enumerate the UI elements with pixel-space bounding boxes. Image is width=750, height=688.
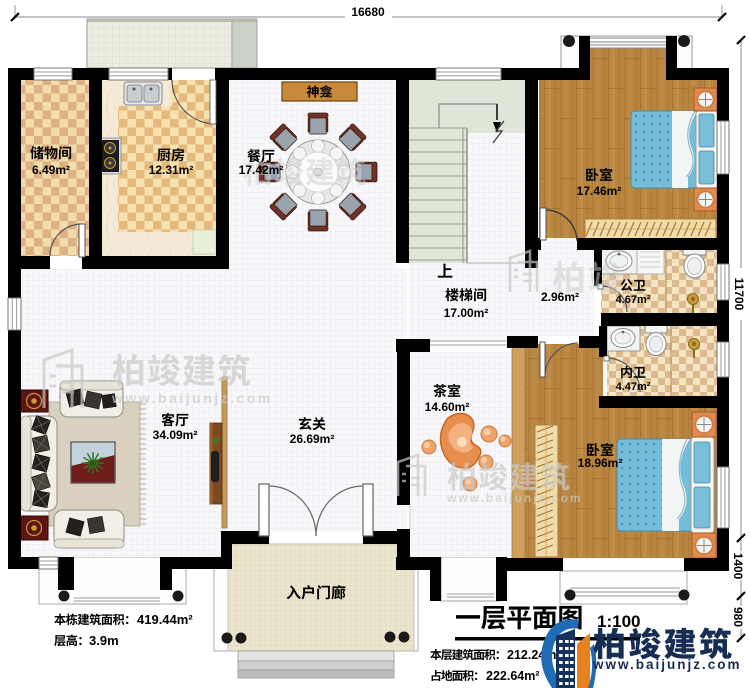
svg-text:980: 980	[731, 607, 745, 627]
svg-text:16680: 16680	[351, 5, 385, 19]
svg-text:34.09m²: 34.09m²	[153, 428, 198, 442]
svg-text:www.baijunjz.com: www.baijunjz.com	[446, 491, 583, 505]
svg-text:4.47m²: 4.47m²	[616, 381, 651, 393]
svg-text:1400: 1400	[731, 553, 745, 580]
svg-text:www.baijunjz.com: www.baijunjz.com	[592, 657, 742, 672]
svg-text:2.96m²: 2.96m²	[541, 290, 579, 304]
svg-text:11700: 11700	[732, 278, 746, 311]
svg-text:17.46m²: 17.46m²	[577, 184, 622, 198]
svg-text:14.60m²: 14.60m²	[425, 400, 470, 414]
svg-text:3.9m: 3.9m	[89, 633, 119, 648]
svg-text:6.49m²: 6.49m²	[32, 163, 70, 177]
svg-text:222.64m²: 222.64m²	[486, 669, 540, 683]
svg-text:26.69m²: 26.69m²	[290, 432, 335, 446]
svg-text:www.baijunjz.com: www.baijunjz.com	[111, 390, 273, 406]
svg-text:18.96m²: 18.96m²	[578, 456, 623, 470]
svg-text:1:100: 1:100	[597, 612, 640, 631]
svg-text:4.67m²: 4.67m²	[616, 294, 651, 306]
svg-text:17.00m²: 17.00m²	[444, 306, 489, 320]
svg-text:419.44m²: 419.44m²	[137, 612, 193, 627]
svg-text:17.42m²: 17.42m²	[239, 163, 284, 177]
svg-text:12.31m²: 12.31m²	[149, 163, 194, 177]
